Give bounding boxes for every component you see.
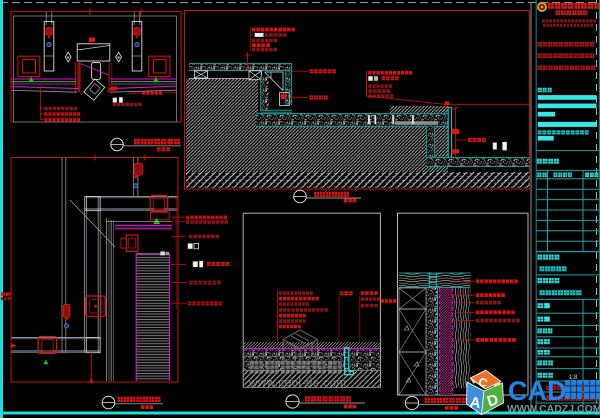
- svg-text:CAD: CAD: [508, 376, 567, 406]
- svg-text:www.cool-de.com: www.cool-de.com: [248, 378, 347, 390]
- svg-text:WWW.CADZJ.COM: WWW.CADZJ.COM: [507, 403, 600, 415]
